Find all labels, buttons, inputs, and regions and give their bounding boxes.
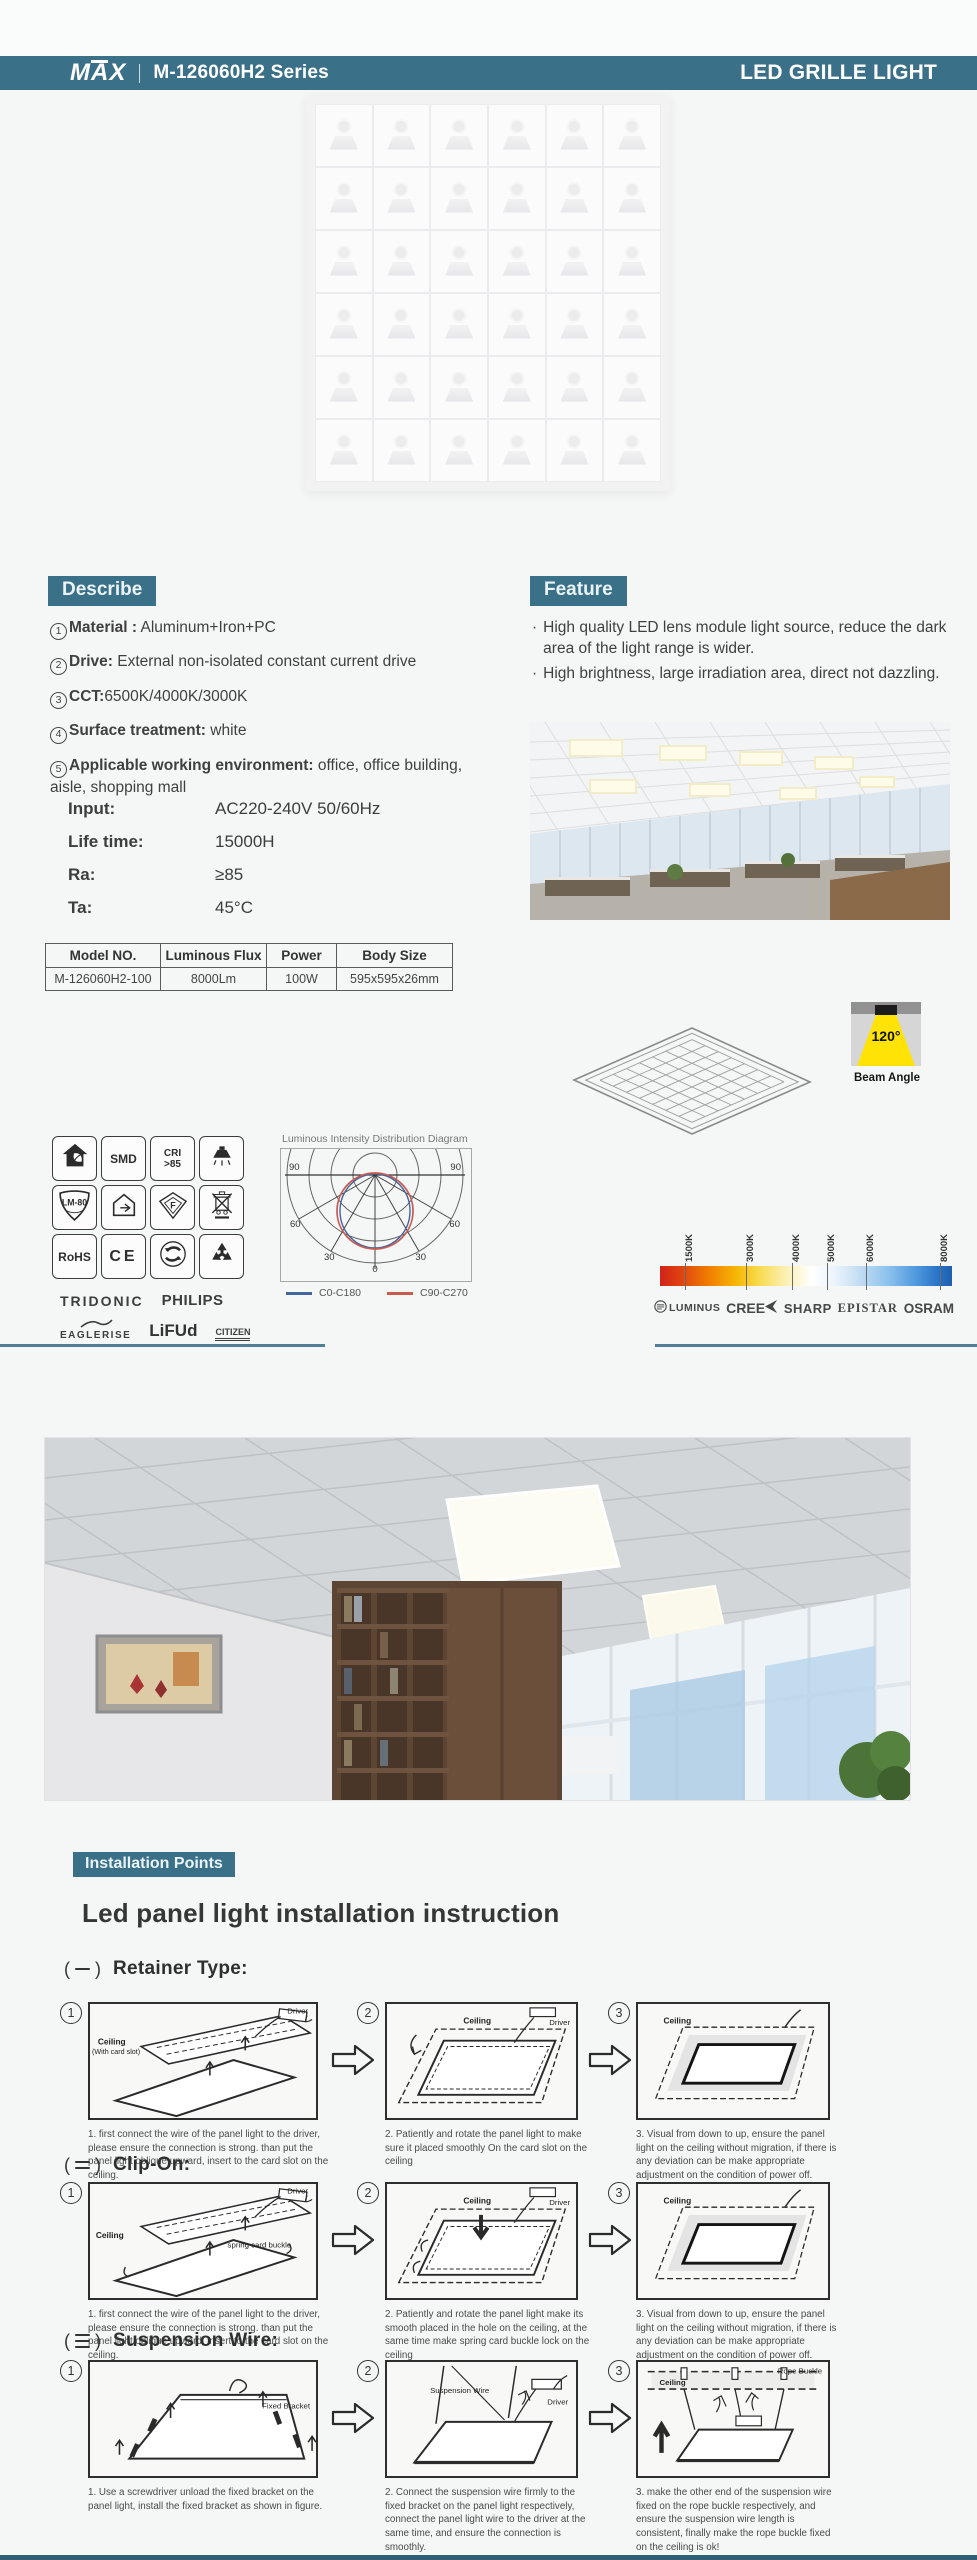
- grille-cell: [546, 167, 604, 230]
- grille-cell: [430, 230, 488, 293]
- numeral-bar: [75, 2340, 90, 2342]
- grille-cell: [488, 167, 546, 230]
- recycle-icon: [199, 1234, 244, 1279]
- numeral-bar: [75, 2346, 90, 2348]
- flow-arrow-icon: [587, 2400, 633, 2436]
- grille-cell: [315, 104, 373, 167]
- svg-text:30: 30: [415, 1252, 426, 1263]
- philips-logo: PHILIPS: [162, 1292, 224, 1309]
- weee-bin-icon: [199, 1185, 244, 1230]
- green-dot-icon: [150, 1234, 195, 1279]
- step-diagram-suspend: Suspension WireDriver: [385, 2360, 578, 2478]
- table-body: M-126060H2-1008000Lm100W595x595x26mm: [46, 968, 453, 991]
- grille-cell: [315, 356, 373, 419]
- table-cell: M-126060H2-100: [46, 968, 161, 991]
- smd-badge: SMD: [101, 1136, 146, 1181]
- feature-list: ·High quality LED lens module light sour…: [532, 618, 956, 689]
- svg-text:Ceiling: Ceiling: [463, 2196, 491, 2205]
- describe-item: 1Material : Aluminum+Iron+PC: [50, 618, 502, 640]
- office-application-photo: [530, 722, 950, 920]
- citizen-logo: CITIZEN: [215, 1327, 250, 1341]
- grille-cell: [373, 356, 431, 419]
- installation-type-title: ()Retainer Type:: [64, 1958, 248, 1980]
- tridonic-logo: TRIDONIC: [60, 1293, 144, 1309]
- item-label: Material :: [69, 619, 137, 636]
- step-number: 2: [357, 2360, 379, 2382]
- header-separator: [139, 64, 140, 83]
- item-text: External non-isolated constant current d…: [113, 653, 416, 670]
- step-caption: 2. Patiently and rotate the panel light …: [385, 2128, 590, 2169]
- installation-type-name: Retainer Type:: [113, 1958, 248, 1980]
- chinese-numeral-二: [75, 2161, 90, 2169]
- paren-open: (: [64, 2155, 70, 2176]
- chip-brand-logos: LUMINUSCREESHARPEPISTAROSRAM: [654, 1300, 954, 1316]
- cct-tick: [746, 1263, 747, 1290]
- chinese-numeral-三: [75, 2334, 90, 2348]
- grille-cell: [373, 104, 431, 167]
- legend-item: C90-C270: [387, 1287, 468, 1299]
- eco-house-icon: [52, 1136, 97, 1181]
- svg-text:Ceiling: Ceiling: [463, 2016, 491, 2025]
- grille-cell: [546, 293, 604, 356]
- top-strip: [0, 0, 977, 56]
- grille-cell: [430, 104, 488, 167]
- item-number: 4: [50, 727, 67, 744]
- item-number: 2: [50, 658, 67, 675]
- item-label: Surface treatment:: [69, 722, 206, 739]
- grille-cell: [315, 167, 373, 230]
- svg-text:Driver: Driver: [549, 2198, 570, 2207]
- grille-cell: [488, 104, 546, 167]
- step-diagram-insert: Ceiling(With card slot)Driver: [88, 2002, 318, 2120]
- spec-table: Model NO.Luminous FluxPowerBody SizeM-12…: [45, 943, 453, 991]
- describe-item: 3CCT:6500K/4000K/3000K: [50, 687, 502, 709]
- svg-text:F: F: [170, 1200, 176, 1210]
- item-label: Drive:: [69, 653, 113, 670]
- describe-item: 4Surface treatment: white: [50, 721, 502, 743]
- lm80-badge-glyph: LM-80: [56, 1188, 93, 1228]
- grille-cell: [488, 419, 546, 482]
- cct-tick-label: 3000K: [745, 1234, 756, 1262]
- svg-text:spring card buckle: spring card buckle: [228, 2241, 292, 2250]
- grille-cell: [430, 293, 488, 356]
- feature-bullet: ·High brightness, large irradiation area…: [532, 664, 956, 685]
- cct-tick-label: 6000K: [865, 1234, 876, 1262]
- bullet-dot: ·: [532, 618, 537, 660]
- svg-text:Suspension Wire: Suspension Wire: [430, 2386, 489, 2395]
- paren-close: ): [95, 2331, 101, 2352]
- grille-cell: [373, 419, 431, 482]
- certification-icon-grid: SMDCRI>85LM-80FRoHSCE: [52, 1136, 252, 1279]
- feature-bullet: ·High quality LED lens module light sour…: [532, 618, 956, 660]
- polar-diagram-title: Luminous Intensity Distribution Diagram: [282, 1133, 468, 1145]
- svg-text:Ceiling: Ceiling: [663, 2196, 691, 2205]
- divider-right: [655, 1344, 977, 1347]
- cree-text: CREE: [726, 1300, 765, 1316]
- house-energy-icon: [101, 1185, 146, 1230]
- weee-bin-icon-glyph: [208, 1189, 236, 1226]
- grille-cell: [546, 356, 604, 419]
- cct-tick: [685, 1263, 686, 1290]
- green-dot-icon-glyph: [158, 1239, 188, 1274]
- bullet-text: High quality LED lens module light sourc…: [543, 618, 956, 660]
- item-number: 3: [50, 692, 67, 709]
- bullet-dot: ·: [532, 664, 537, 685]
- svg-text:90: 90: [289, 1162, 300, 1173]
- item-text: white: [206, 722, 247, 739]
- step-diagram-rotate-spring: CeilingDriver: [385, 2182, 578, 2300]
- lifud-logo: LiFUd: [149, 1321, 197, 1341]
- spec-label: Ra:: [68, 865, 215, 885]
- chinese-numeral-一: [75, 1968, 90, 1970]
- spec-label: Life time:: [68, 832, 215, 852]
- grille-cell: [488, 356, 546, 419]
- step-number: 3: [608, 2182, 630, 2204]
- svg-text:90: 90: [450, 1162, 461, 1173]
- paren-close: ): [95, 2155, 101, 2176]
- item-number: 5: [50, 761, 67, 778]
- grille-cell: [546, 419, 604, 482]
- table-header-cell: Power: [267, 944, 337, 968]
- cct-tick: [827, 1263, 828, 1290]
- svg-text:LM-80: LM-80: [62, 1197, 87, 1207]
- cct-tick: [940, 1263, 941, 1290]
- cct-tick: [866, 1263, 867, 1290]
- sharp-logo: SHARP: [784, 1301, 832, 1316]
- step-number: 3: [608, 2002, 630, 2024]
- product-title: LED GRILLE LIGHT: [740, 61, 937, 85]
- brand-row-1: TRIDONICPHILIPS: [60, 1292, 280, 1309]
- f-mark-icon: F: [150, 1185, 195, 1230]
- grille-cell: [603, 104, 661, 167]
- product-page: MAX M-126060H2 Series LED GRILLE LIGHT D…: [0, 0, 977, 2560]
- grille-cell: [488, 293, 546, 356]
- driver-brand-logos: TRIDONICPHILIPSEAGLERISELiFUdCITIZEN: [60, 1292, 280, 1350]
- eaglerise-logo: EAGLERISE: [60, 1318, 131, 1341]
- grille-cell: [603, 293, 661, 356]
- table-header-row: Model NO.Luminous FluxPowerBody Size: [46, 944, 453, 968]
- step-caption: 3. Visual from down to up, ensure the pa…: [636, 2128, 842, 2183]
- describe-item: 5Applicable working environment: office,…: [50, 756, 502, 799]
- luminus-text: LUMINUS: [669, 1302, 720, 1314]
- spec-row: Ta:45°C: [68, 898, 488, 918]
- spec-row: Ra:≥85: [68, 865, 488, 885]
- step-number: 2: [357, 2002, 379, 2024]
- grille-cell: [430, 356, 488, 419]
- cri-badge: CRI>85: [150, 1136, 195, 1181]
- step-number: 1: [60, 2360, 82, 2382]
- grille-cell: [315, 230, 373, 293]
- cct-tick-label: 8000K: [939, 1234, 950, 1262]
- rohs-badge: RoHS: [52, 1234, 97, 1279]
- spec-label: Input:: [68, 799, 215, 819]
- cct-tick-label: 4000K: [791, 1234, 802, 1262]
- step-caption: 1. Use a screwdriver unload the fixed br…: [88, 2486, 330, 2513]
- step-number: 2: [357, 2182, 379, 2204]
- flow-arrow-icon: [330, 2222, 376, 2258]
- lm80-badge: LM-80: [52, 1185, 97, 1230]
- cct-tick: [792, 1263, 793, 1290]
- bullet-text: High brightness, large irradiation area,…: [543, 664, 939, 685]
- describe-item: 2Drive: External non-isolated constant c…: [50, 652, 502, 674]
- grille-cell: [373, 167, 431, 230]
- house-energy-icon-glyph: [109, 1190, 139, 1225]
- spec-list: Input:AC220-240V 50/60HzLife time:15000H…: [68, 799, 488, 931]
- flow-arrow-icon: [587, 2222, 633, 2258]
- step-diagram-rope: CeilingRope Buckle: [636, 2360, 830, 2478]
- eco-house-icon-glyph: [60, 1141, 90, 1176]
- table-cell: 8000Lm: [161, 968, 267, 991]
- grille-cell: [373, 293, 431, 356]
- beam-angle-label: Beam Angle: [845, 1072, 929, 1084]
- table-header-cell: Luminous Flux: [161, 944, 267, 968]
- cree-logo: CREE: [726, 1300, 778, 1316]
- step-diagram-insert-spring: spring card buckleCeilingDriver: [88, 2182, 318, 2300]
- ce-mark: CE: [101, 1234, 146, 1279]
- svg-text:30: 30: [324, 1252, 335, 1263]
- polar-diagram: 9090606030300: [280, 1148, 472, 1282]
- item-text: 6500K/4000K/3000K: [104, 688, 247, 705]
- beam-angle-icon: 120°: [851, 1002, 921, 1066]
- divider-left: [0, 1344, 325, 1347]
- step-diagram-rotate: CeilingDriver: [385, 2002, 578, 2120]
- table-row: M-126060H2-1008000Lm100W595x595x26mm: [46, 968, 453, 991]
- item-label: Applicable working environment:: [69, 757, 314, 774]
- svg-text:Driver: Driver: [549, 2018, 570, 2027]
- bottom-bar: [0, 2555, 977, 2560]
- step-caption: 3. Visual from down to up, ensure the pa…: [636, 2308, 842, 2363]
- table-cell: 100W: [267, 968, 337, 991]
- flow-arrow-icon: [330, 2400, 376, 2436]
- installation-section-label: Installation Points: [73, 1852, 235, 1877]
- svg-text:Driver: Driver: [547, 2398, 568, 2407]
- step-diagram-done: Ceiling: [636, 2002, 830, 2120]
- cri-badge-line: >85: [164, 1159, 181, 1170]
- series-title: M-126060H2 Series: [153, 62, 329, 84]
- feature-section-label: Feature: [530, 576, 627, 606]
- numeral-bar: [75, 2167, 90, 2169]
- spec-value: ≥85: [215, 865, 243, 885]
- spec-value: 15000H: [215, 832, 275, 852]
- downlight-icon: [199, 1136, 244, 1181]
- svg-text:Driver: Driver: [287, 2007, 308, 2016]
- epistar-logo: EPISTAR: [838, 1301, 898, 1316]
- legend-item: C0-C180: [286, 1287, 361, 1299]
- step-diagram-bracket: Fixed Bracket: [88, 2360, 318, 2478]
- eaglerise-text: EAGLERISE: [60, 1331, 131, 1341]
- paren-open: (: [64, 1959, 70, 1980]
- numeral-bar: [75, 1968, 90, 1970]
- item-number: 1: [50, 623, 67, 640]
- brand-logo: MAX: [70, 59, 126, 87]
- grille-cell: [373, 230, 431, 293]
- step-number: 1: [60, 2002, 82, 2024]
- step-number: 1: [60, 2182, 82, 2204]
- svg-text:Rope Buckle: Rope Buckle: [778, 2367, 822, 2376]
- installation-type-name: Suspension Wire:: [113, 2330, 278, 2352]
- svg-text:(With card slot): (With card slot): [92, 2048, 140, 2056]
- f-mark-icon-glyph: F: [158, 1190, 188, 1225]
- luminus-icon: [654, 1300, 667, 1316]
- recycle-icon-glyph: [207, 1239, 237, 1274]
- grille-cell: [546, 230, 604, 293]
- grille-cell: [603, 356, 661, 419]
- flow-arrow-icon: [330, 2042, 376, 2078]
- spec-value: AC220-240V 50/60Hz: [215, 799, 380, 819]
- svg-text:60: 60: [449, 1219, 460, 1230]
- grille-cell: [315, 419, 373, 482]
- installation-heading: Led panel light installation instruction: [82, 1898, 559, 1929]
- grille-grid: [315, 104, 661, 482]
- numeral-bar: [75, 2161, 90, 2163]
- spec-label: Ta:: [68, 898, 215, 918]
- item-text: Aluminum+Iron+PC: [137, 619, 276, 636]
- spec-row: Life time:15000H: [68, 832, 488, 852]
- osram-logo: OSRAM: [904, 1301, 954, 1316]
- cri-badge-line: CRI: [164, 1148, 181, 1159]
- grille-cell: [430, 167, 488, 230]
- numeral-bar: [75, 2334, 90, 2336]
- describe-section-label: Describe: [48, 576, 156, 606]
- grille-cell: [546, 104, 604, 167]
- grille-cell: [430, 419, 488, 482]
- step-caption: 3. make the other end of the suspension …: [636, 2486, 842, 2555]
- grille-cell: [603, 419, 661, 482]
- svg-text:Ceiling: Ceiling: [663, 2016, 691, 2025]
- paren-close: ): [95, 1959, 101, 1980]
- installation-type-name: Clip-On:: [113, 2154, 190, 2176]
- cct-gradient-bar: [660, 1266, 952, 1286]
- table-header-cell: Body Size: [337, 944, 453, 968]
- polar-legend: C0-C180C90-C270: [286, 1287, 468, 1299]
- svg-text:60: 60: [290, 1219, 301, 1230]
- smd-badge-text: SMD: [110, 1152, 137, 1166]
- legend-label: C90-C270: [420, 1287, 468, 1299]
- svg-text:Fixed Bracket: Fixed Bracket: [262, 2401, 311, 2410]
- header-bar: MAX M-126060H2 Series LED GRILLE LIGHT: [0, 56, 977, 90]
- paren-open: (: [64, 2331, 70, 2352]
- rohs-badge-text: RoHS: [58, 1250, 91, 1264]
- brand-row-2: EAGLERISELiFUdCITIZEN: [60, 1318, 280, 1341]
- flow-arrow-icon: [587, 2042, 633, 2078]
- cct-tick-label: 5000K: [826, 1234, 837, 1262]
- luminus-logo: LUMINUS: [654, 1300, 720, 1316]
- panel-wireframe-drawing: [560, 1012, 814, 1146]
- cct-tick-label: 1500K: [684, 1234, 695, 1262]
- svg-text:Driver: Driver: [287, 2187, 308, 2196]
- grille-cell: [603, 167, 661, 230]
- product-photo-grille-panel: [306, 95, 670, 491]
- step-diagram-done: Ceiling: [636, 2182, 830, 2300]
- installed-ceiling-photo: [45, 1438, 910, 1800]
- spec-row: Input:AC220-240V 50/60Hz: [68, 799, 488, 819]
- grille-cell: [603, 230, 661, 293]
- legend-label: C0-C180: [319, 1287, 361, 1299]
- spec-value: 45°C: [215, 898, 253, 918]
- beam-led-chip: [875, 1005, 897, 1015]
- downlight-icon-glyph: [208, 1142, 236, 1175]
- step-number: 3: [608, 2360, 630, 2382]
- step-caption: 2. Patiently and rotate the panel light …: [385, 2308, 590, 2363]
- svg-text:0: 0: [372, 1264, 377, 1275]
- svg-text:Ceiling: Ceiling: [96, 2231, 124, 2240]
- table-head: Model NO.Luminous FluxPowerBody Size: [46, 944, 453, 968]
- installation-type-title: ()Suspension Wire:: [64, 2330, 278, 2352]
- cree-arrow-icon: [765, 1300, 778, 1316]
- svg-text:Ceiling: Ceiling: [98, 2038, 126, 2047]
- table-header-cell: Model NO.: [46, 944, 161, 968]
- item-label: CCT:: [69, 688, 104, 705]
- grille-cell: [315, 293, 373, 356]
- svg-text:Ceiling: Ceiling: [660, 2378, 686, 2387]
- ce-mark-text: CE: [109, 1248, 137, 1266]
- beam-angle-value: 120°: [851, 1028, 921, 1044]
- legend-swatch: [387, 1292, 413, 1295]
- grille-cell: [488, 230, 546, 293]
- color-temperature-scale: 1500K3000K4000K5000K6000K8000K: [660, 1222, 952, 1292]
- table-cell: 595x595x26mm: [337, 968, 453, 991]
- installation-type-title: ()Clip-On:: [64, 2154, 190, 2176]
- describe-list: 1Material : Aluminum+Iron+PC2Drive: Exte…: [50, 618, 502, 811]
- legend-swatch: [286, 1292, 312, 1295]
- step-caption: 2. Connect the suspension wire firmly to…: [385, 2486, 590, 2555]
